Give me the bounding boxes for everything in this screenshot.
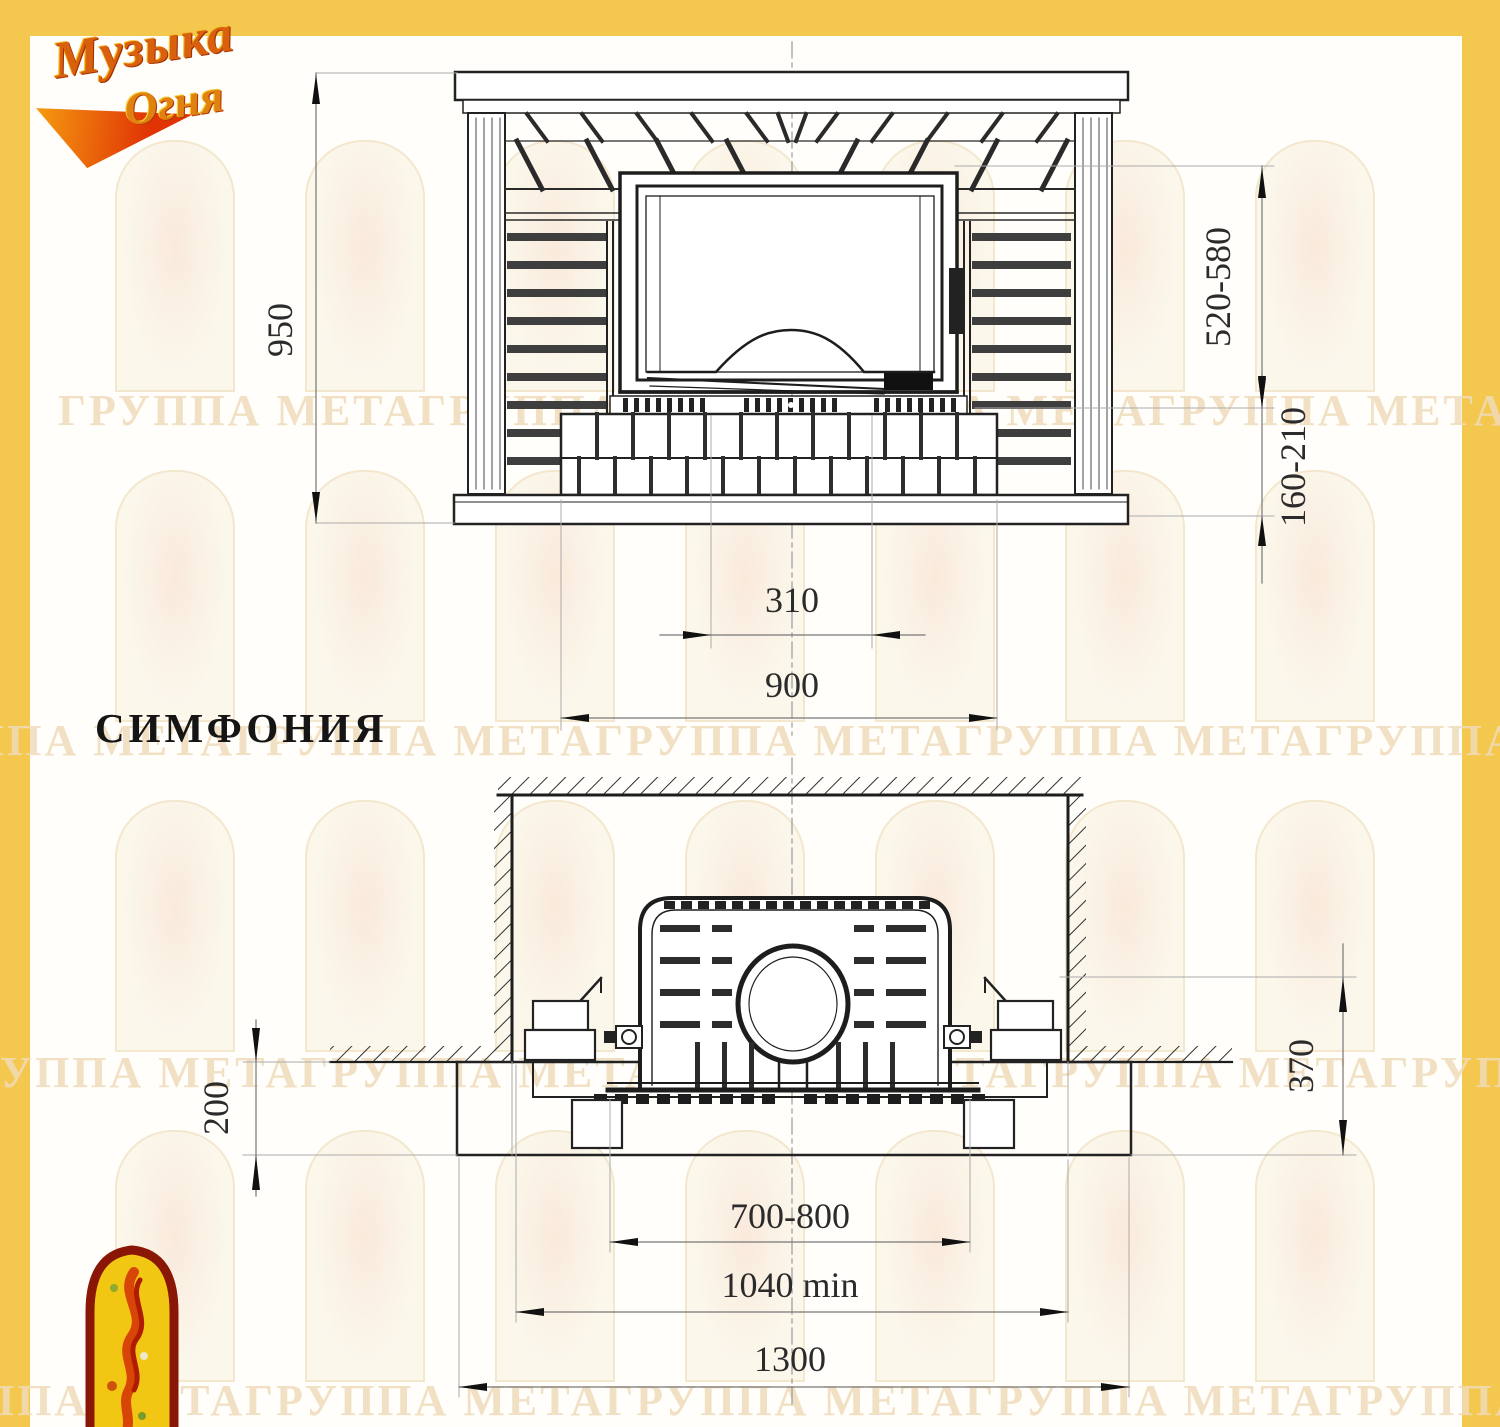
plan-view-drawing: 200 370 700-800 1040 min 1300 — [196, 758, 1356, 1405]
vent-grille — [610, 396, 967, 414]
dim-base-width-label: 900 — [765, 665, 819, 705]
plinth-slab — [454, 495, 1128, 524]
firebox-plan — [594, 898, 985, 1104]
dim-overall-height-label: 950 — [260, 303, 300, 357]
front-view-drawing: 950 520-580 160-210 310 900 — [260, 42, 1313, 735]
dim-floor-offset-label: 200 — [196, 1081, 236, 1135]
dim-firebox-top-label: 520-580 — [1198, 227, 1238, 347]
door-handle — [884, 373, 933, 390]
mantel-shelf — [455, 72, 1128, 100]
flue-outlet-circle — [738, 946, 848, 1062]
flame-dancer-icon — [80, 1236, 184, 1427]
dim-center-width-label: 310 — [765, 580, 819, 620]
logo-word-2: Огня — [120, 69, 227, 137]
door-latch — [949, 268, 963, 334]
mascot-emblem — [80, 1236, 184, 1427]
page-title: СИМФОНИЯ — [95, 704, 388, 752]
brand-logo: Музыка Огня — [26, 14, 296, 174]
dim-hearth-range-label: 160-210 — [1273, 407, 1313, 527]
dim-opening-range-label: 700-800 — [730, 1196, 850, 1236]
dim-niche-min-label: 1040 min — [721, 1265, 858, 1305]
dim-slab-offset-label: 370 — [1281, 1039, 1321, 1093]
mantel-molding — [463, 100, 1120, 113]
right-pilaster — [1075, 113, 1112, 494]
firebox-insert — [620, 173, 963, 394]
base-brick-block — [561, 414, 997, 495]
dim-slab-width-label: 1300 — [754, 1339, 826, 1379]
left-pilaster — [468, 113, 505, 494]
